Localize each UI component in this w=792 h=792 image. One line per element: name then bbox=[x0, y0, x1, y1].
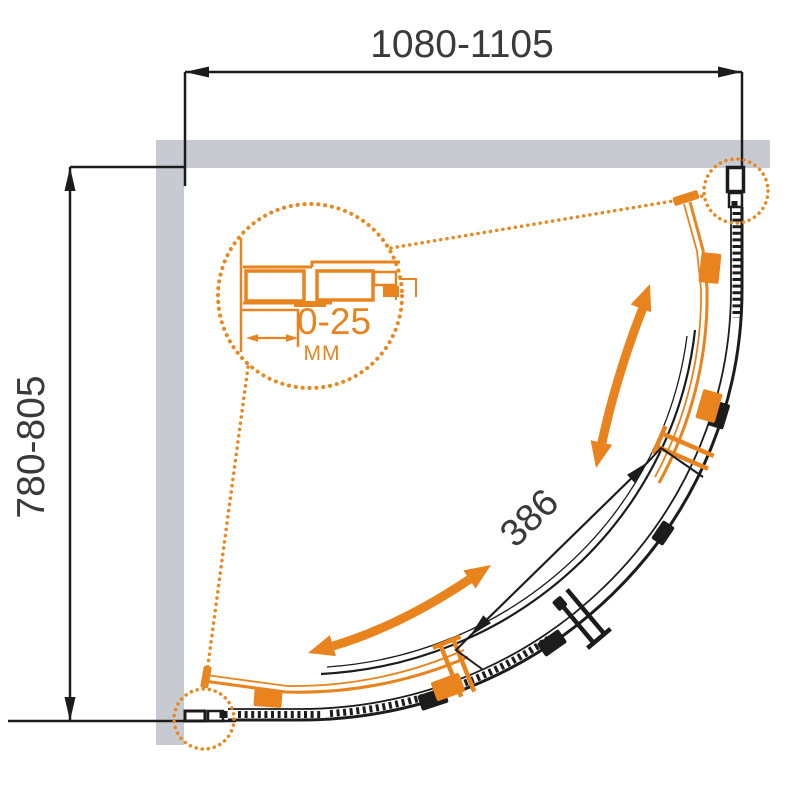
door-glass-line bbox=[204, 657, 468, 692]
roller-bracket-orange bbox=[698, 252, 721, 284]
arrowhead-right-icon bbox=[718, 67, 742, 78]
slide-arrow-lower bbox=[333, 579, 470, 646]
profile-notch bbox=[220, 711, 228, 718]
profile-notch bbox=[732, 201, 738, 207]
callout-connector-down bbox=[205, 367, 248, 687]
depth-range-label: 780-805 bbox=[10, 375, 53, 518]
door-handles bbox=[432, 425, 717, 699]
arrowhead-left-icon bbox=[246, 334, 258, 342]
dimension-depth: 780-805 bbox=[8, 167, 236, 721]
arrowhead-down-icon bbox=[65, 697, 76, 721]
adjustment-range-label: 0-25 bbox=[297, 301, 371, 342]
arrowhead-down-icon bbox=[591, 440, 613, 468]
handle-orange-upper bbox=[652, 425, 717, 476]
profile-top-flange bbox=[243, 262, 400, 267]
sliding-door-lower bbox=[200, 650, 468, 692]
quadrant-enclosure-diagram: 1080-1105 780-805 bbox=[0, 0, 792, 792]
roller-bracket-black bbox=[537, 629, 567, 657]
sliding-door-upper bbox=[655, 190, 707, 483]
wall-profile-bottom-left bbox=[185, 711, 228, 721]
slide-arrow-upper bbox=[601, 305, 644, 447]
wall-left bbox=[156, 140, 184, 745]
technical-drawing-canvas: 1080-1105 780-805 bbox=[0, 0, 792, 792]
arrowhead-left-icon bbox=[185, 67, 209, 78]
adjustment-profile-detail: 0-25 MM bbox=[241, 238, 416, 365]
arrowhead-up-icon bbox=[65, 167, 76, 191]
profile-box-3 bbox=[374, 272, 396, 285]
wall-profile-top-right bbox=[728, 168, 744, 208]
profile-box-1 bbox=[246, 271, 304, 301]
dimension-door-opening: 386 bbox=[456, 448, 703, 669]
profile-pocket bbox=[241, 310, 298, 347]
wall-top bbox=[156, 140, 770, 168]
roller-bracket-orange bbox=[253, 688, 282, 708]
profile-box-2 bbox=[317, 271, 373, 300]
inner-rail-line bbox=[321, 330, 695, 674]
profile-outer-box bbox=[728, 168, 744, 192]
roller-bracket-orange bbox=[430, 672, 465, 701]
door-opening-label: 386 bbox=[492, 481, 567, 555]
width-range-label: 1080-1105 bbox=[370, 23, 554, 66]
arrowhead-left-icon bbox=[308, 635, 336, 656]
arrowhead-up-icon bbox=[631, 284, 652, 312]
adjustment-unit-label: MM bbox=[304, 342, 341, 365]
callout-connector-right bbox=[391, 196, 703, 248]
profile-outer-box bbox=[185, 711, 205, 721]
